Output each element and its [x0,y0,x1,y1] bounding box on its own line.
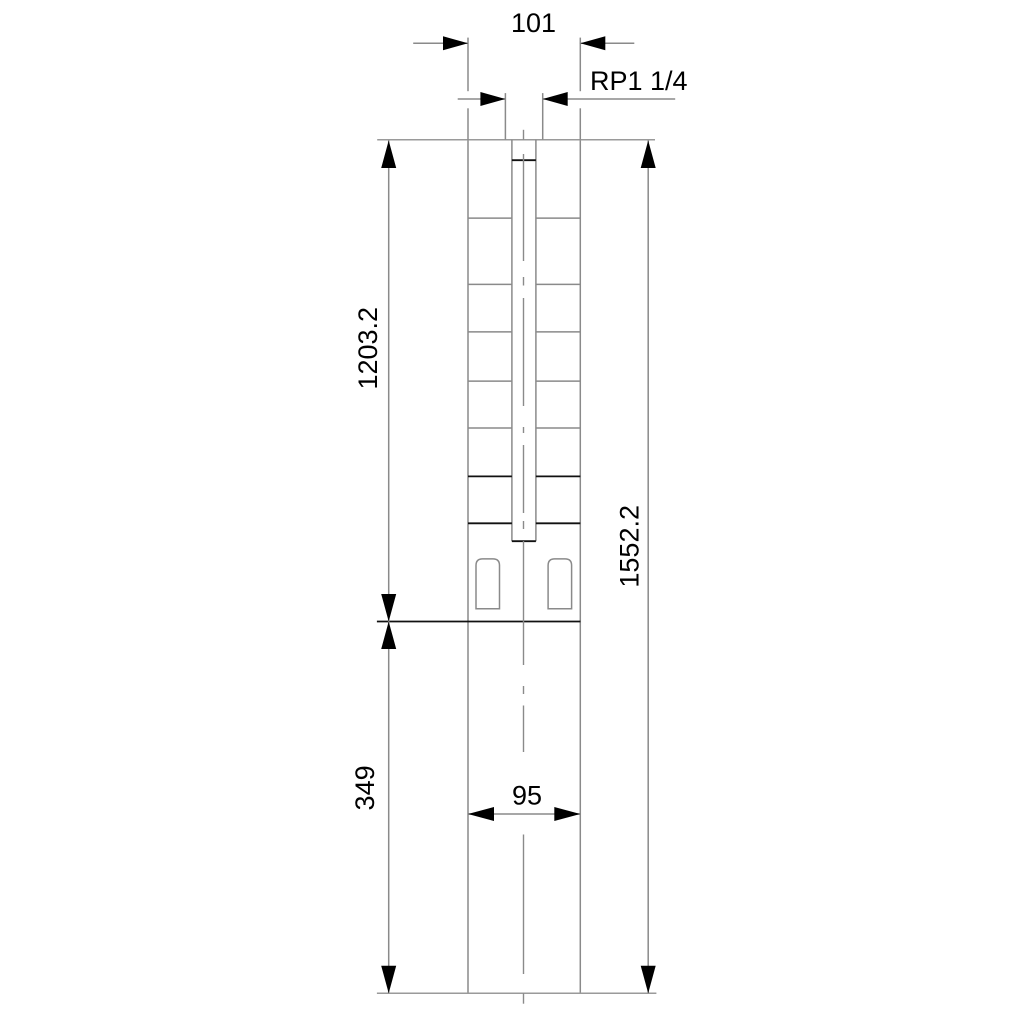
svg-text:1552.2: 1552.2 [615,505,645,588]
svg-text:1203.2: 1203.2 [353,307,383,390]
svg-text:349: 349 [350,765,380,810]
svg-text:RP1 1/4: RP1 1/4 [590,66,688,96]
svg-text:101: 101 [511,8,556,38]
svg-text:95: 95 [512,781,542,811]
